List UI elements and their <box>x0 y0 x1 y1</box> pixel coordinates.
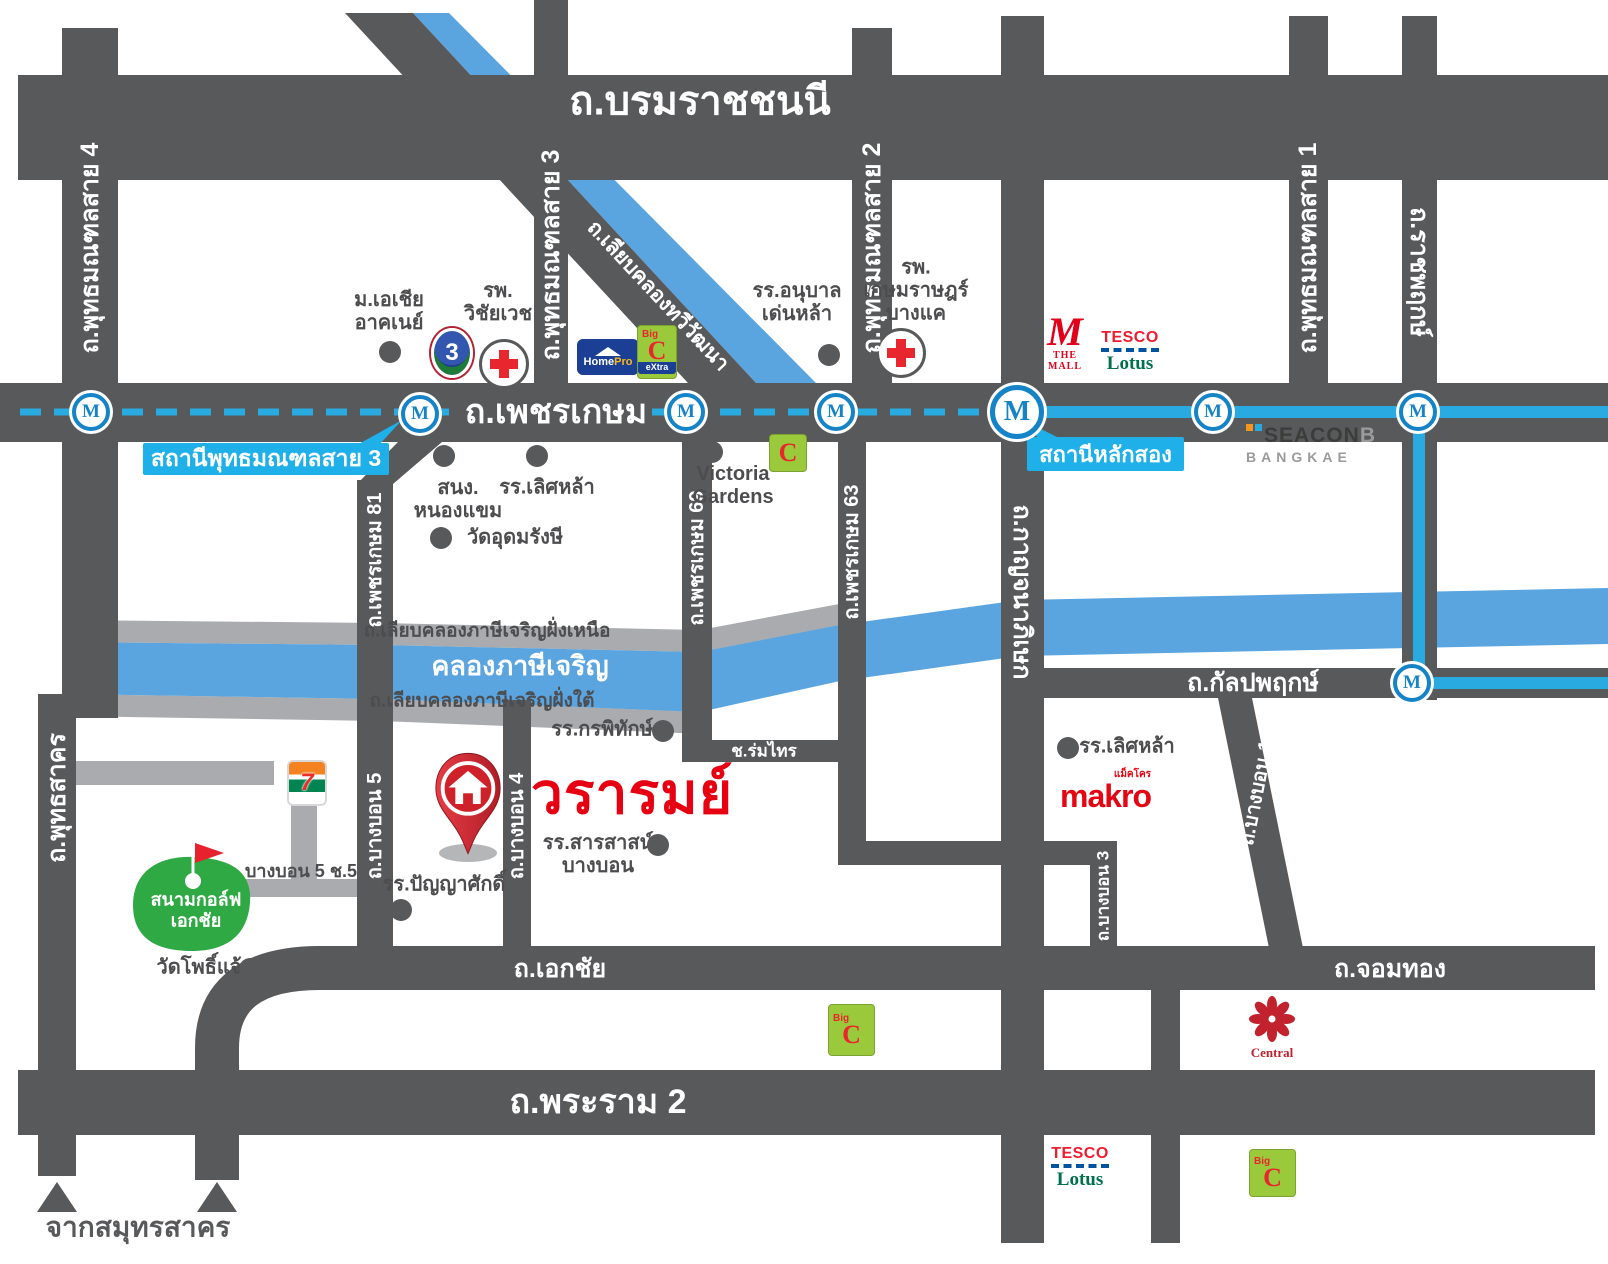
map-base <box>0 0 1608 1264</box>
label-bangbon5-soi5: บางบอน 5 ช.5 <box>245 861 357 881</box>
landmark-dot <box>652 720 674 742</box>
bigc-logo-victoria: C <box>769 434 807 472</box>
landmark-dot <box>701 441 723 463</box>
project-location-pin[interactable] <box>431 750 505 858</box>
map-pin-icon <box>431 750 505 858</box>
mrt-station-icon-m6[interactable]: M <box>1194 393 1232 431</box>
label-bangbon-4: ถ.บางบอน 4 <box>506 773 528 879</box>
label-phetkasem-63: ถ.เพชรเกษม 63 <box>841 484 863 619</box>
label-ekachai-golf: สนามกอล์ฟ เอกชัย <box>151 889 242 930</box>
label-lertla-school-2: รร.เลิศหล้า <box>1079 736 1175 759</box>
mrt-station-icon-m7[interactable]: M <box>1399 393 1437 431</box>
landmark-dot <box>430 527 452 549</box>
callout-laksong: สถานีหลักสอง <box>1027 437 1184 471</box>
mrt-station-icon-m4[interactable]: M <box>817 393 855 431</box>
label-from-samut-sakhon: จากสมุทรสาคร <box>46 1211 231 1242</box>
label-wat-udomrangsi: วัดอุดมรังษี <box>467 527 563 550</box>
label-bangbon-5: ถ.บางบอน 5 <box>364 773 386 879</box>
label-asia-university: ม.เอเชีย อาคเนย์ <box>354 289 424 335</box>
label-victoria-gardens: Victoria Gardens <box>692 463 773 509</box>
location-map: สถานีพุทธมณฑลสาย 3 สถานีหลักสอง HomePro … <box>0 0 1608 1264</box>
label-kornpitak-school: รร.กรพิทักษ์ <box>551 719 653 742</box>
bigc-logo-ekkachai: Big C <box>828 1004 875 1056</box>
seven-eleven-logo: 7 <box>287 760 327 806</box>
label-kanchanaphisek: ถ.กาญจนาภิเษก <box>1008 505 1036 680</box>
central-flower-icon <box>1249 996 1295 1042</box>
label-project-name: วรารมย์ <box>531 763 733 827</box>
label-soi-romsai: ช.ร่มไทร <box>731 741 797 760</box>
thawi-watthana-canal <box>413 13 816 383</box>
label-phetkasem: ถ.เพชรเกษม <box>465 393 647 431</box>
seacon-blue-square-icon <box>1255 424 1262 431</box>
seacon-orange-square-icon <box>1246 424 1253 431</box>
tesco-dashes-icon <box>1101 348 1159 352</box>
the-mall-logo: M THE MALL <box>1036 314 1094 372</box>
label-khlong-phasi-charoen: คลองภาษีเจริญ <box>431 651 608 681</box>
landmark-dot <box>390 899 412 921</box>
label-phutthamonthon-1: ถ.พุทธมณฑลสาย 1 <box>1294 143 1322 354</box>
landmark-dot <box>818 344 840 366</box>
label-wichaiwet-hospital: รพ. วิชัยเวช <box>464 280 532 326</box>
road-phutthamonthon-4 <box>62 28 118 718</box>
label-denla-kindergarten: รร.อนุบาล เด่นหล้า <box>753 280 842 326</box>
label-phuttha-sakhon: ถ.พุทธสาคร <box>43 733 71 863</box>
label-ekkachai: ถ.เอกชัย <box>514 955 606 983</box>
label-borommaratchachonnani: ถ.บรมราชชนนี <box>569 80 831 125</box>
label-phetkasem-69: ถ.เพชรเกษม 69 <box>686 490 708 625</box>
label-nong-khaem-office: สนง. หนองแขม <box>414 477 502 523</box>
label-chomthong: ถ.จอมทอง <box>1334 955 1446 983</box>
channel3-style-logo: 3 <box>431 328 473 378</box>
road-rama2 <box>18 1070 1595 1135</box>
mrt-station-icon-m1[interactable]: M <box>72 393 110 431</box>
landmark-dot <box>379 341 401 363</box>
arrow-from-samut-sakhon-1 <box>37 1182 77 1212</box>
callout-phutthamonthon-sai3: สถานีพุทธมณฑลสาย 3 <box>143 443 389 475</box>
label-phetkasem-81: ถ.เพชรเกษม 81 <box>364 492 386 627</box>
label-kanlapaphruek: ถ.กัลปพฤกษ์ <box>1187 669 1319 697</box>
bigc-logo-rama2: Big C <box>1249 1149 1296 1197</box>
tesco-lotus-logo-bangkae: TESCO Lotus <box>1101 330 1159 373</box>
hospital-cross-icon-wichaiwet <box>479 339 529 389</box>
label-lertla-school: รร.เลิศหล้า <box>499 477 595 500</box>
mrt-station-icon-m-kanlapaphruek[interactable]: M <box>1393 664 1431 702</box>
label-kasemrat-hospital: รพ. เกษมราษฎร์ บางแค <box>864 257 969 326</box>
mrt-station-icon-m3[interactable]: M <box>667 393 705 431</box>
tesco-dashes-icon <box>1051 1164 1109 1168</box>
homepro-logo: HomePro <box>577 339 639 375</box>
landmark-dot <box>647 834 669 856</box>
label-bangbon-3: ถ.บางบอน 3 <box>1093 851 1112 941</box>
bigc-extra-logo: Big C eXtra <box>637 325 677 379</box>
central-logo: Central <box>1247 996 1297 1061</box>
landmark-dot <box>239 958 261 980</box>
arrow-from-samut-sakhon-2 <box>197 1182 237 1212</box>
landmark-dot <box>433 445 455 467</box>
label-liap-khlong-tai: ถ.เลียบคลองภาษีเจริญฝั่งใต้ <box>370 690 595 711</box>
label-liap-khlong-nuea: ถ.เลียบคลองภาษีเจริญฝั่งเหนือ <box>364 620 611 641</box>
mrt-station-icon-m-laksong[interactable]: M <box>990 385 1044 439</box>
label-rama2: ถ.พระราม 2 <box>509 1083 686 1121</box>
homepro-roof-icon <box>595 347 621 356</box>
label-panyasak-school: รร.ปัญญาศักดิ์ <box>383 874 506 897</box>
golf-hole-icon <box>185 873 201 889</box>
seacon-bangkae-logo: SEACONB BANGKAE <box>1246 424 1375 465</box>
makro-logo: แม็คโคร makro <box>1060 770 1151 812</box>
label-phutthamonthon-4: ถ.พุทธมณฑลสาย 4 <box>76 143 104 354</box>
label-wat-pho-chae: วัดโพธิ์แจ้ <box>157 957 242 980</box>
landmark-dot <box>526 445 548 467</box>
tesco-lotus-logo-rama2: TESCO Lotus <box>1051 1146 1109 1189</box>
label-ratchaphruek: ถ.ราชพฤกษ์ <box>1405 207 1433 337</box>
landmark-dot <box>1057 737 1079 759</box>
label-sarasas-bangbon-school: รร.สารสาสน์ บางบอน <box>543 832 654 878</box>
label-phutthamonthon-3: ถ.พุทธมณฑลสาย 3 <box>537 150 565 361</box>
mrt-station-icon-m2[interactable]: M <box>401 395 439 433</box>
